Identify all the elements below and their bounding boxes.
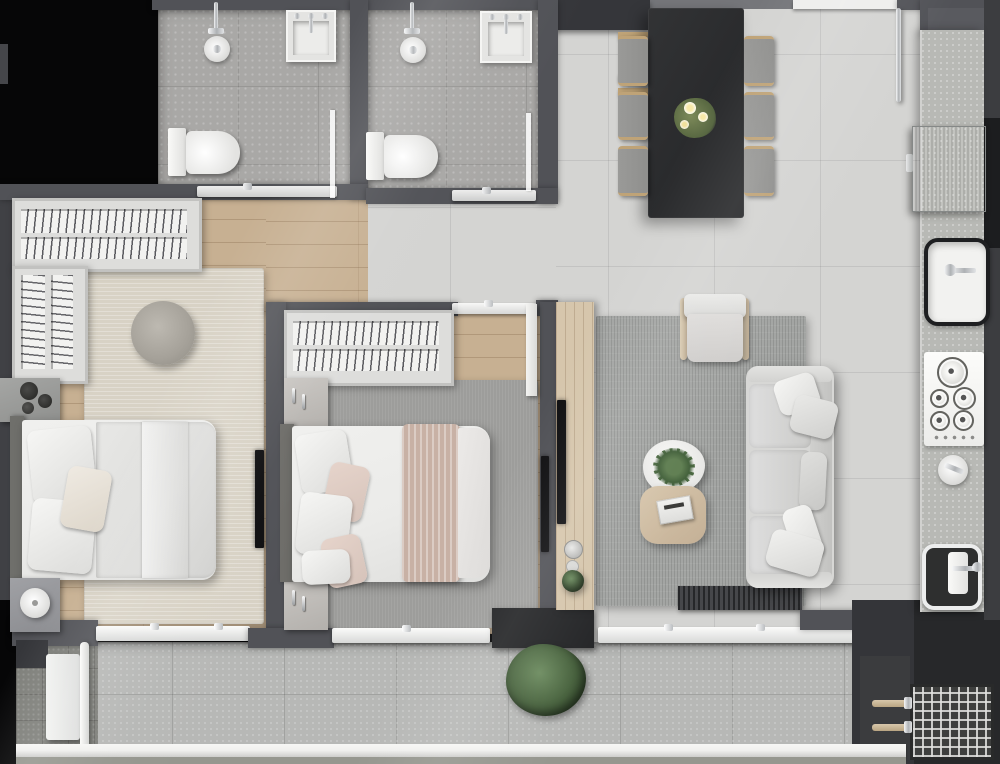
shower-drain xyxy=(204,36,230,62)
balcony-right-wall xyxy=(800,610,858,630)
bathroom-1-glass-door xyxy=(197,186,337,197)
balcony-railing xyxy=(16,744,906,758)
bathroom-2-glass-door xyxy=(452,190,536,201)
pouf xyxy=(131,301,195,365)
balcony-bush xyxy=(506,644,586,716)
doormat xyxy=(678,586,802,610)
pillow xyxy=(301,549,351,585)
drawer-handle-icon xyxy=(302,596,305,611)
floor-plan xyxy=(0,0,1000,764)
flower-bloom-icon xyxy=(680,120,689,129)
bedroom-2-wardrobe xyxy=(284,310,454,386)
bedroom-2-door-leaf xyxy=(526,304,537,396)
refrigerator xyxy=(912,126,986,212)
cooktop-knob-row xyxy=(932,434,978,441)
hanger-rail xyxy=(21,237,187,259)
faucet-handle-icon xyxy=(322,13,328,19)
void-top-left xyxy=(0,0,158,188)
drawer-handle-icon xyxy=(292,388,295,403)
balcony-floor xyxy=(16,642,912,760)
left-edge-mark xyxy=(0,44,8,84)
toilet-tank xyxy=(168,128,186,176)
sofa-pillow xyxy=(799,451,828,510)
ac-unit xyxy=(46,654,80,740)
cooktop xyxy=(924,352,984,446)
hanger-rail xyxy=(293,321,439,345)
faucet-handle-icon xyxy=(517,14,523,20)
decor-vase xyxy=(22,402,34,414)
faucet-handle-icon xyxy=(294,13,300,19)
door-handle-icon xyxy=(756,624,765,631)
pipe-coupling-icon xyxy=(904,697,912,709)
flower-bloom-icon xyxy=(684,102,696,114)
bottom-wall-middle xyxy=(248,628,334,648)
bathroom-1-sink xyxy=(286,10,336,62)
drain-pipe xyxy=(80,642,89,756)
door-handle-icon xyxy=(482,187,491,194)
nightstand xyxy=(284,378,328,428)
decor-plate xyxy=(564,540,583,559)
refrigerator-handle-icon xyxy=(906,154,913,172)
entry-door-leaf xyxy=(793,0,897,9)
bedroom-1-wardrobe-top xyxy=(12,198,202,272)
duvet-foot xyxy=(458,428,490,578)
faucet-handle-icon xyxy=(489,14,495,20)
kitchen-second-sink xyxy=(922,544,982,610)
hanger-rail xyxy=(21,209,187,233)
sink-faucet-base-icon xyxy=(944,264,956,276)
shower-glass-panel xyxy=(526,113,531,191)
sink-faucet-base-icon xyxy=(972,562,982,572)
door-handle-icon xyxy=(402,625,411,632)
blush-throw xyxy=(402,424,460,582)
toilet-tank xyxy=(366,132,384,180)
pipe-coupling-icon xyxy=(904,721,912,733)
railing-base xyxy=(16,757,906,764)
toilet-bowl xyxy=(384,135,438,178)
shower-head-icon xyxy=(208,28,224,34)
living-room-tv xyxy=(557,400,566,524)
hanger-rail xyxy=(293,349,439,371)
bedroom-2-tv xyxy=(541,456,549,552)
faucet-neck-icon xyxy=(504,20,508,34)
burner-icon xyxy=(930,389,949,408)
bedroom-1-wardrobe-side xyxy=(12,266,88,384)
door-handle-icon xyxy=(664,624,673,631)
door-handle-icon xyxy=(214,623,223,630)
burner-icon xyxy=(953,387,976,410)
condenser-grate xyxy=(910,684,994,760)
drawer-handle-icon xyxy=(302,394,305,409)
hanger-rail xyxy=(21,275,45,369)
burner-icon xyxy=(953,410,974,431)
table-lamp xyxy=(20,588,50,618)
sofa-armrest xyxy=(748,572,832,588)
decor-vase xyxy=(38,394,52,408)
kitchen-main-sink xyxy=(924,238,990,326)
entry-cabinet xyxy=(554,0,650,30)
bathroom-2-sink xyxy=(480,11,532,63)
drawer-handle-icon xyxy=(292,590,295,605)
planter-box xyxy=(492,608,594,648)
dining-chair xyxy=(618,146,648,196)
armchair-seat xyxy=(687,314,743,362)
entry-hall-floor xyxy=(366,200,556,314)
door-handle-icon xyxy=(150,623,159,630)
dining-chair xyxy=(744,36,774,86)
shower-drain xyxy=(400,37,426,63)
duvet-fold xyxy=(142,422,188,578)
faucet-neck-icon xyxy=(309,19,313,33)
bathroom-2-right-wall xyxy=(538,0,558,204)
shower-glass-panel xyxy=(330,110,335,198)
sink-board xyxy=(948,552,968,594)
fern-plant xyxy=(653,448,695,486)
dining-chair xyxy=(618,92,648,140)
lamp-finial-icon xyxy=(32,600,38,606)
hanger-rail xyxy=(51,275,73,369)
dining-chair xyxy=(744,146,774,196)
bedroom-1-tv xyxy=(255,450,264,548)
door-handle-icon xyxy=(484,300,493,307)
flower-bloom-icon xyxy=(698,112,708,122)
decor-vase xyxy=(20,382,38,400)
drain-cap-icon xyxy=(409,46,417,54)
top-wall xyxy=(152,0,594,10)
bedroom-2-sliding-door xyxy=(332,628,490,643)
door-handle-icon xyxy=(243,183,252,190)
toilet-bowl xyxy=(186,131,240,174)
dining-chair xyxy=(744,92,774,140)
entry-door-handle-rail xyxy=(896,8,901,102)
balcony-wall-stub xyxy=(16,640,48,668)
bedroom-1-sliding-door xyxy=(96,626,250,641)
dining-chair xyxy=(618,36,648,86)
shower-head-icon xyxy=(404,28,420,34)
burner-icon xyxy=(930,411,950,431)
burner-large-icon xyxy=(937,357,968,388)
nightstand xyxy=(284,578,328,630)
console-plant xyxy=(562,570,584,592)
drain-cap-icon xyxy=(213,45,221,53)
